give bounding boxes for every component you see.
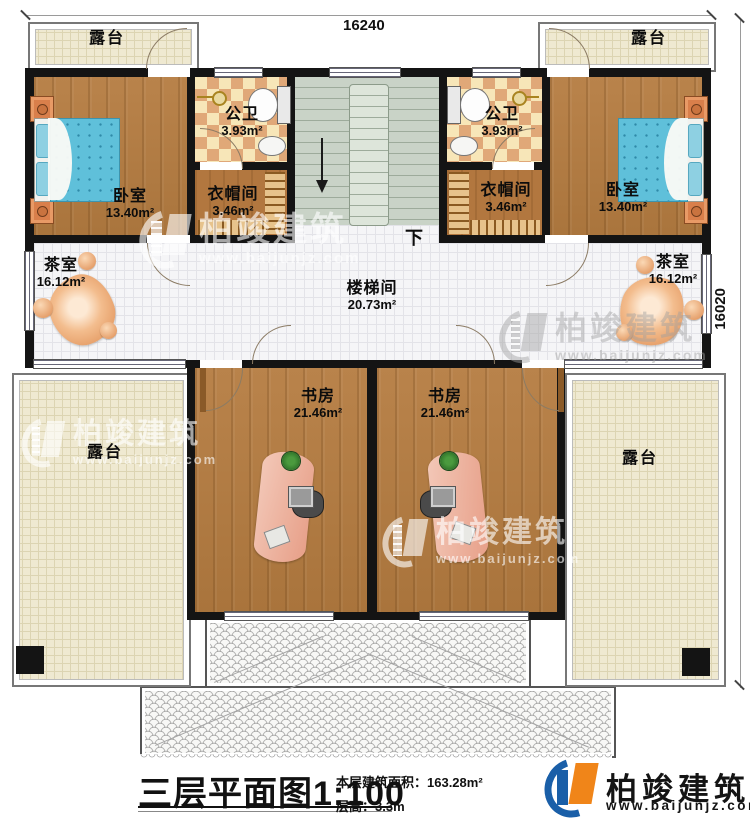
label-terrace-top-left: 露台	[72, 30, 142, 48]
window-top-right	[473, 68, 520, 77]
sink	[450, 136, 478, 156]
pillow	[688, 124, 702, 158]
dimension-line-top	[25, 15, 712, 16]
pillow	[688, 162, 702, 196]
dimension-top-value: 16240	[343, 17, 385, 34]
sink	[258, 136, 286, 156]
stool	[33, 298, 53, 318]
label-stairwell: 楼梯间20.73m²	[322, 280, 422, 312]
window-study-left	[225, 612, 333, 620]
dimension-right-value: 16020	[712, 288, 729, 330]
stool	[616, 324, 633, 341]
plant	[440, 452, 458, 470]
computer-monitor	[430, 486, 456, 508]
window-corridor-southwest	[34, 360, 185, 368]
door-opening	[148, 68, 190, 77]
label-bedroom-right: 卧室13.40m²	[568, 182, 678, 214]
stair-direction-arrow	[321, 138, 323, 182]
corner-column	[682, 648, 710, 676]
door-opening	[200, 360, 242, 368]
door-opening	[147, 235, 190, 243]
door-opening	[522, 360, 564, 368]
brand-logo-icon	[545, 762, 599, 818]
label-tearoom-right: 茶室16.12m²	[627, 254, 719, 286]
label-stair-down: 下	[400, 228, 430, 248]
floor-area-text: 本层建筑面积：163.28m²	[336, 772, 483, 791]
shower-head	[512, 91, 527, 106]
shower-head	[212, 91, 227, 106]
clothes-rack	[470, 220, 540, 235]
window-top-center	[330, 68, 400, 77]
label-bathroom-right: 公卫3.93m²	[456, 106, 548, 138]
label-cloakroom-right: 衣帽间3.46m²	[460, 182, 552, 214]
window-top-left	[215, 68, 262, 77]
dimension-line-right	[740, 18, 741, 688]
window-corridor-southeast	[565, 360, 702, 368]
label-terrace-top-right: 露台	[614, 30, 684, 48]
window-study-right	[420, 612, 528, 620]
wall-stair-east	[439, 68, 447, 243]
stool	[684, 300, 704, 320]
wall-bath-bedroom-right	[542, 68, 550, 243]
brand-url: www.baijunjz.com	[606, 798, 750, 813]
terrace-bottom-left	[12, 373, 191, 687]
stool	[100, 322, 117, 339]
label-terrace-bottom-left: 露台	[70, 444, 140, 462]
floor-height-text: 层高：3.3m	[336, 796, 405, 815]
corner-column	[16, 646, 44, 674]
label-cloakroom-left: 衣帽间3.46m²	[187, 186, 279, 218]
floor-plan: 16240 16020	[0, 0, 750, 826]
door-opening	[547, 68, 589, 77]
label-bedroom-left: 卧室13.40m²	[75, 188, 185, 220]
computer-monitor	[288, 486, 314, 508]
label-study-left: 书房21.46m²	[258, 388, 378, 420]
stair-arrow-head	[316, 180, 328, 193]
stair-middle-flight	[349, 84, 389, 226]
door-opening	[545, 235, 588, 243]
wall-study-left-west	[187, 368, 195, 620]
label-terrace-bottom-right: 露台	[605, 450, 675, 468]
label-tearoom-left: 茶室16.12m²	[15, 257, 107, 289]
roof-eave-edge	[140, 754, 612, 763]
clothes-rack	[198, 220, 266, 235]
terrace-bottom-right	[565, 373, 726, 687]
plant	[282, 452, 300, 470]
label-bathroom-left: 公卫3.93m²	[196, 106, 288, 138]
label-study-right: 书房21.46m²	[385, 388, 505, 420]
